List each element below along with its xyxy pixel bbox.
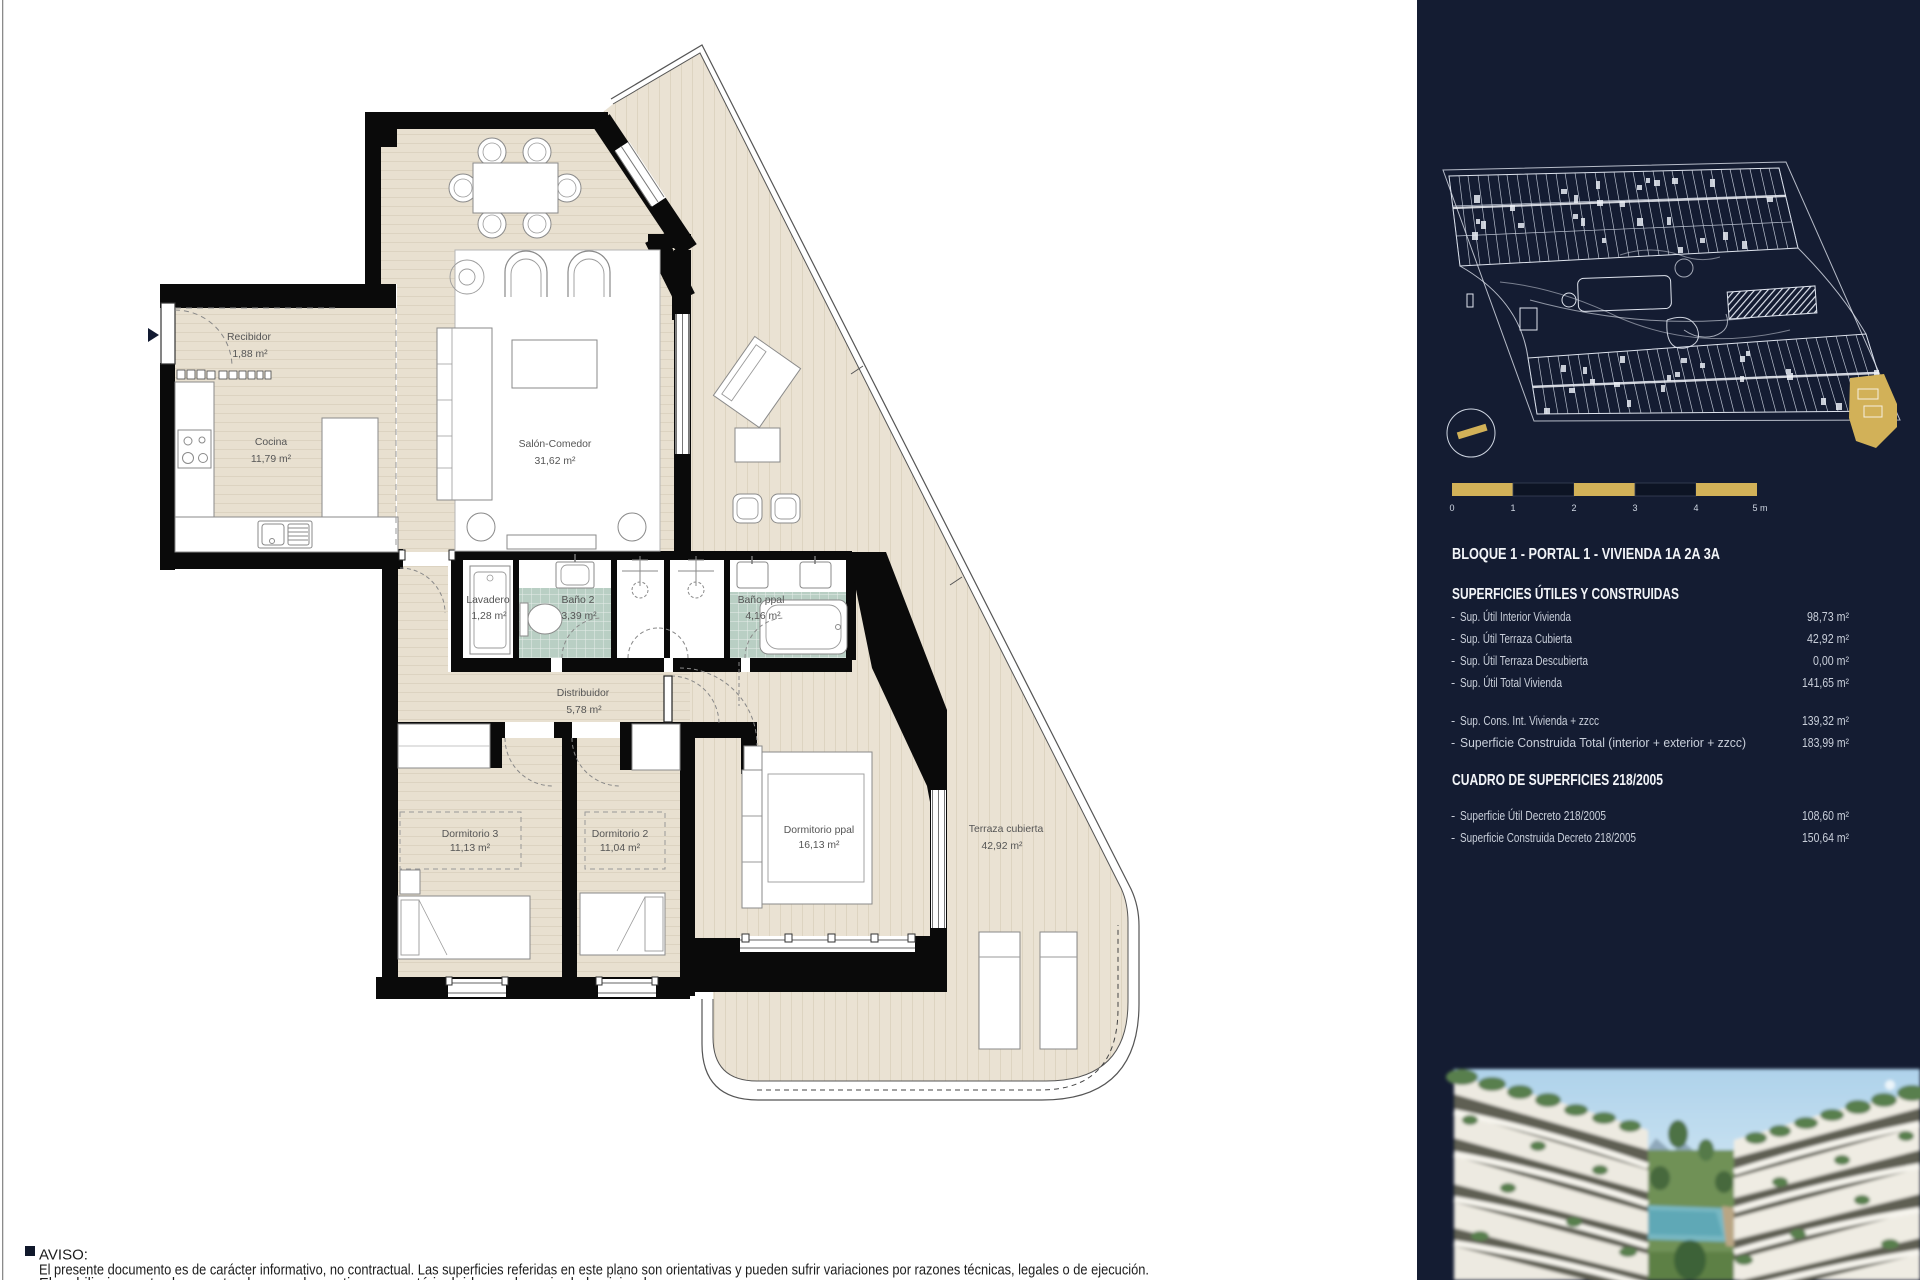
- svg-text:Cocina: Cocina: [255, 437, 288, 448]
- svg-text:Terraza cubierta: Terraza cubierta: [969, 824, 1044, 835]
- svg-text:Recibidor: Recibidor: [227, 332, 271, 343]
- svg-text:Dormitorio 2: Dormitorio 2: [592, 829, 649, 840]
- svg-text:5,78 m²: 5,78 m²: [566, 705, 602, 716]
- svg-text:CUADRO DE SUPERFICIES 218/2005: CUADRO DE SUPERFICIES 218/2005: [1452, 772, 1663, 789]
- svg-text:183,99 m²: 183,99 m²: [1802, 736, 1849, 750]
- svg-text:11,04 m²: 11,04 m²: [600, 843, 641, 854]
- svg-text:El mobiliario mostrado en este: El mobiliario mostrado en este plano es …: [39, 1275, 659, 1280]
- svg-text:3: 3: [1632, 503, 1637, 513]
- svg-text:Baño 2: Baño 2: [562, 595, 595, 606]
- svg-text:-: -: [1451, 632, 1455, 646]
- svg-text:139,32 m²: 139,32 m²: [1802, 714, 1849, 728]
- svg-text:4: 4: [1693, 503, 1698, 513]
- svg-text:Superficie Construida Decreto: Superficie Construida Decreto 218/2005: [1460, 831, 1636, 845]
- svg-text:BLOQUE 1 - PORTAL 1 - VIVIENDA: BLOQUE 1 - PORTAL 1 - VIVIENDA 1A 2A 3A: [1452, 546, 1720, 563]
- svg-text:Sup. Útil Terraza Descubierta: Sup. Útil Terraza Descubierta: [1460, 653, 1588, 668]
- svg-text:Dormitorio 3: Dormitorio 3: [442, 829, 499, 840]
- svg-text:-: -: [1451, 654, 1455, 668]
- svg-text:141,65 m²: 141,65 m²: [1802, 676, 1849, 690]
- svg-text:-: -: [1451, 809, 1455, 823]
- svg-text:Sup. Útil Total Vivienda: Sup. Útil Total Vivienda: [1460, 675, 1562, 690]
- svg-text:42,92 m²: 42,92 m²: [1807, 632, 1849, 646]
- svg-text:-: -: [1451, 676, 1455, 690]
- svg-text:2: 2: [1571, 503, 1576, 513]
- svg-text:1: 1: [1510, 503, 1515, 513]
- svg-text:98,73 m²: 98,73 m²: [1807, 610, 1849, 624]
- svg-text:0: 0: [1449, 503, 1454, 513]
- svg-text:Dormitorio ppal: Dormitorio ppal: [784, 825, 854, 836]
- svg-text:Distribuidor: Distribuidor: [557, 688, 610, 699]
- svg-text:Superficie Útil Decreto 218/20: Superficie Útil Decreto 218/2005: [1460, 808, 1606, 823]
- svg-text:-: -: [1451, 736, 1455, 750]
- svg-text:1,28 m²: 1,28 m²: [471, 611, 507, 622]
- svg-text:Sup. Útil Interior Vivienda: Sup. Útil Interior Vivienda: [1460, 609, 1571, 624]
- svg-text:108,60 m²: 108,60 m²: [1802, 809, 1849, 823]
- svg-text:Sup. Útil Terraza Cubierta: Sup. Útil Terraza Cubierta: [1460, 631, 1572, 646]
- svg-text:11,13 m²: 11,13 m²: [450, 843, 491, 854]
- svg-text:Sup. Cons. Int. Vivienda + zzc: Sup. Cons. Int. Vivienda + zzcc: [1460, 714, 1599, 728]
- svg-text:0,00 m²: 0,00 m²: [1813, 654, 1849, 668]
- svg-text:-: -: [1451, 831, 1455, 845]
- svg-text:4,16 m²: 4,16 m²: [745, 611, 781, 622]
- svg-text:5 m: 5 m: [1752, 503, 1767, 513]
- svg-text:3,39 m²: 3,39 m²: [561, 611, 597, 622]
- svg-text:16,13 m²: 16,13 m²: [798, 840, 840, 851]
- svg-text:-: -: [1451, 610, 1455, 624]
- svg-text:Salón-Comedor: Salón-Comedor: [519, 439, 592, 450]
- svg-text:Baño ppal: Baño ppal: [738, 595, 785, 606]
- svg-text:11,79 m²: 11,79 m²: [251, 454, 292, 465]
- svg-text:1,88 m²: 1,88 m²: [232, 349, 268, 360]
- svg-text:150,64 m²: 150,64 m²: [1802, 831, 1849, 845]
- svg-text:42,92 m²: 42,92 m²: [981, 841, 1023, 852]
- svg-text:Lavadero: Lavadero: [466, 595, 510, 606]
- svg-text:31,62 m²: 31,62 m²: [534, 456, 576, 467]
- svg-text:-: -: [1451, 714, 1455, 728]
- svg-text:SUPERFICIES ÚTILES Y CONSTRUID: SUPERFICIES ÚTILES Y CONSTRUIDAS: [1452, 585, 1679, 603]
- svg-text:Superficie Construida Total (i: Superficie Construida Total (interior + …: [1460, 736, 1746, 750]
